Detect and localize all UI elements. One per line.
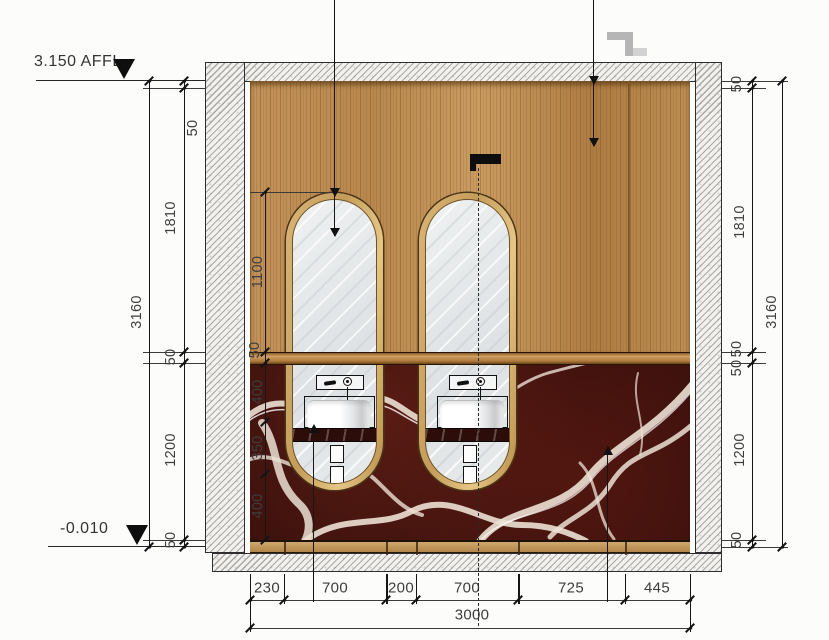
wood-leader-line xyxy=(593,0,594,146)
level-marker-icon xyxy=(113,59,135,79)
left-mirror-glass xyxy=(292,199,377,484)
dim-label: 50 xyxy=(729,360,745,377)
leader-arrow-icon xyxy=(309,424,319,433)
baseboard-seam xyxy=(625,542,627,555)
leader-arrow-icon xyxy=(603,446,613,455)
top-level-line xyxy=(36,80,205,81)
floor-slab-hatch xyxy=(212,553,722,572)
section-flag-tab xyxy=(470,164,476,171)
dim-label: 1810 xyxy=(732,205,748,238)
pipe-symbol-icon xyxy=(633,48,647,56)
right-overall-dimension-line xyxy=(782,81,783,547)
baseboard xyxy=(250,540,690,553)
section-flag-icon xyxy=(470,154,501,164)
right-basin xyxy=(440,400,504,428)
mirror-leader-line xyxy=(334,0,335,236)
left-wall-hatch xyxy=(205,62,245,553)
ceiling-slab-hatch xyxy=(205,62,722,82)
bathroom-vanity-elevation-drawing: 3.150 AFFL -0.010 50 1810 50 1200 50 316… xyxy=(0,0,829,640)
right-wall-hatch xyxy=(695,62,722,553)
dim-label: 725 xyxy=(558,580,584,597)
baseboard-seam xyxy=(284,542,286,555)
dim-label: 50 xyxy=(163,532,179,549)
dim-label: 700 xyxy=(454,580,480,597)
top-level-label: 3.150 AFFL xyxy=(34,53,122,71)
marble-vein xyxy=(636,373,642,455)
level-marker-icon xyxy=(126,525,148,545)
baseboard-seam xyxy=(386,542,388,555)
dim-label: 1100 xyxy=(250,256,266,288)
counter-leader-line xyxy=(313,426,314,602)
left-overall-dimension-line xyxy=(149,81,150,547)
dim-label: 1810 xyxy=(163,201,179,234)
dim-label: 50 xyxy=(247,342,263,359)
baseboard-seam xyxy=(416,542,418,555)
dim-label: 50 xyxy=(163,349,179,366)
dim-label: 400 xyxy=(250,493,266,518)
dim-label: 1200 xyxy=(163,433,179,466)
inner-chain-dimension-line xyxy=(265,192,266,540)
extension-line xyxy=(690,574,691,632)
dim-label: 50 xyxy=(729,341,745,358)
extension-line xyxy=(143,88,205,89)
extension-line xyxy=(250,574,251,632)
dim-label: 1200 xyxy=(732,433,748,466)
left-drain-trap-lower xyxy=(330,466,344,484)
right-chain-dimension-line xyxy=(752,81,753,547)
baseboard-seam xyxy=(518,542,520,555)
marble-vein xyxy=(580,463,614,539)
leader-arrow-icon xyxy=(589,76,599,85)
left-drain-trap-upper xyxy=(330,445,344,463)
dim-label: 230 xyxy=(254,580,280,597)
dim-label: 50 xyxy=(729,76,745,93)
marble-leader-line xyxy=(607,448,608,602)
dim-label: 200 xyxy=(388,580,414,597)
marble-vein xyxy=(550,425,690,537)
right-faucet-knob-dot xyxy=(479,380,482,383)
right-mirror-glass xyxy=(425,199,510,484)
leader-arrow-icon xyxy=(589,138,599,147)
dim-label: 400 xyxy=(250,379,266,404)
right-mirror-capsule xyxy=(419,193,516,490)
pipe-symbol-icon xyxy=(625,38,633,56)
dim-label: 445 xyxy=(644,580,670,597)
leader-arrow-icon xyxy=(330,228,340,237)
left-chain-dimension-line xyxy=(184,81,185,547)
bottom-overall-dimension-line xyxy=(250,628,690,629)
dim-label: 700 xyxy=(322,580,348,597)
dim-label: 350 xyxy=(250,435,266,460)
left-faucet-knob-dot xyxy=(346,380,349,383)
bottom-level-label: -0.010 xyxy=(60,520,108,538)
dim-label: 3160 xyxy=(764,295,780,328)
wood-panel-joint xyxy=(628,84,630,352)
right-drain-trap-lower xyxy=(463,466,477,484)
dim-label: 50 xyxy=(729,532,745,549)
left-counter-band xyxy=(293,428,377,442)
right-basin-centerline xyxy=(478,168,479,626)
dim-label: 50 xyxy=(185,120,201,137)
dim-label: 3160 xyxy=(129,295,145,328)
right-drain-trap-upper xyxy=(463,445,477,463)
right-counter-band xyxy=(426,428,510,442)
left-mirror-capsule xyxy=(286,193,383,490)
dim-label: 3000 xyxy=(455,607,490,624)
wood-shelf-band xyxy=(250,352,690,365)
